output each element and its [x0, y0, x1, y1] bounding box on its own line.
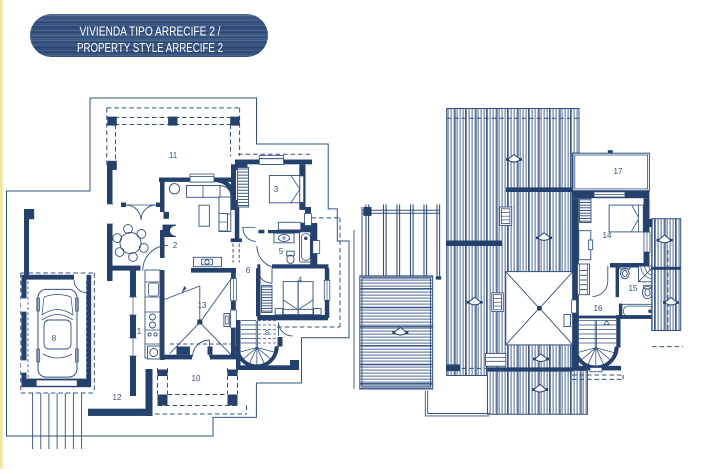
svg-text:VIVIENDA TIPO ARRECIFE 2 /: VIVIENDA TIPO ARRECIFE 2 / [80, 24, 221, 39]
svg-text:2: 2 [173, 241, 178, 250]
svg-text:12: 12 [113, 393, 122, 402]
svg-text:8: 8 [52, 334, 57, 343]
svg-text:17: 17 [614, 167, 623, 176]
svg-text:16: 16 [594, 304, 603, 313]
svg-text:11: 11 [169, 151, 178, 160]
svg-text:PROPERTY STYLE ARRECIFE 2: PROPERTY STYLE ARRECIFE 2 [77, 40, 223, 55]
svg-text:9: 9 [265, 330, 269, 337]
svg-text:13: 13 [198, 301, 207, 310]
svg-text:14: 14 [603, 231, 612, 240]
svg-text:5: 5 [279, 247, 284, 256]
svg-text:3: 3 [274, 185, 279, 194]
svg-text:15: 15 [629, 284, 638, 293]
svg-text:1: 1 [137, 327, 142, 336]
svg-text:10: 10 [192, 374, 201, 383]
svg-text:6: 6 [246, 266, 251, 275]
svg-text:4: 4 [298, 276, 303, 285]
